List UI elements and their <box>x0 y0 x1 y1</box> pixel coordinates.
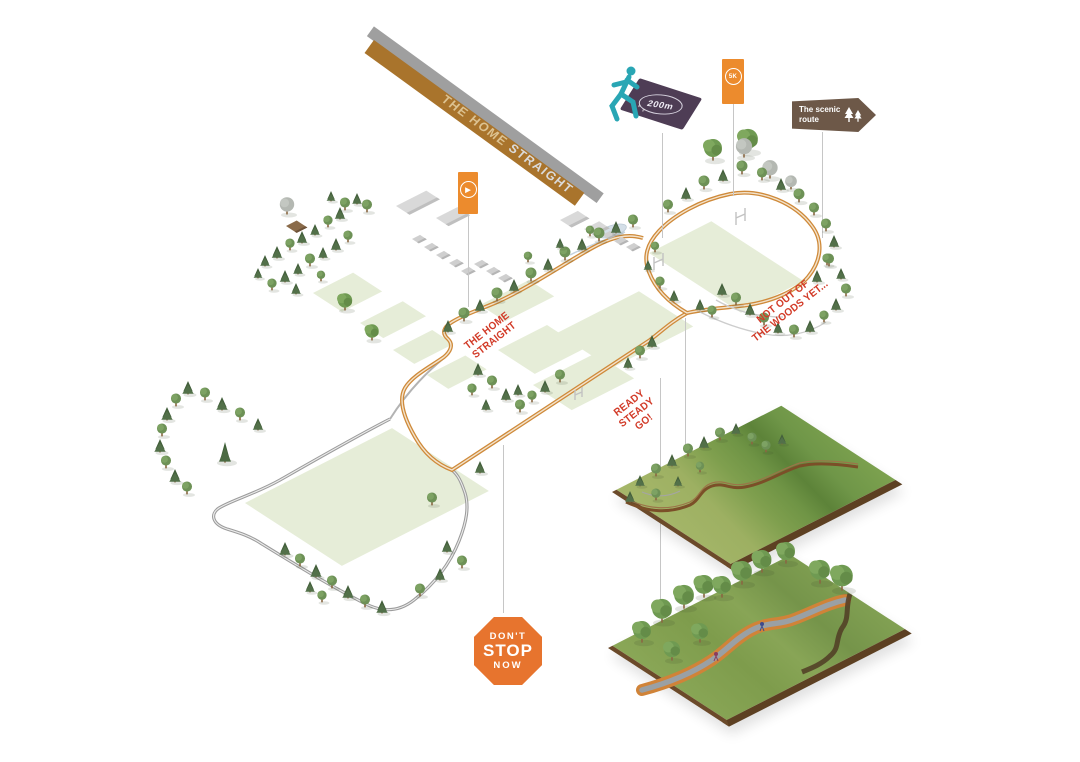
route-badge-banner: 5K <box>722 59 744 104</box>
tree-icon <box>340 198 353 213</box>
tree-icon <box>695 299 707 313</box>
tree-icon <box>699 436 712 451</box>
tree-icon <box>527 391 539 405</box>
stop-line3: NOW <box>493 660 522 671</box>
tree-icon <box>651 464 664 479</box>
tree-icon <box>272 246 285 261</box>
tree-icon <box>415 584 428 599</box>
tree-icon <box>501 388 514 403</box>
tree-icon <box>737 160 751 177</box>
route-badge-icon: 5K <box>725 68 742 85</box>
pine-trees-icon <box>843 105 865 125</box>
tree-icon <box>473 363 486 378</box>
park-running-route-masterplan: THE HOME STRAIGHT 200m ▶ 5K The scenic r… <box>0 0 1080 762</box>
tree-icon <box>317 591 329 605</box>
tree-icon <box>647 335 660 350</box>
tree-icon <box>216 397 230 413</box>
tree-icon <box>161 456 174 471</box>
tree-icon <box>635 475 647 489</box>
tree-icon <box>285 239 297 253</box>
tree-icon <box>669 290 681 304</box>
tree-icon <box>556 238 567 251</box>
tree-icon <box>635 346 648 361</box>
tree-icon <box>644 260 655 273</box>
tree-icon <box>667 454 680 469</box>
tree-icon <box>435 568 448 583</box>
tree-icon <box>200 388 213 403</box>
tree-icon <box>467 384 479 398</box>
tree-icon <box>305 254 318 269</box>
tree-icon <box>651 242 662 255</box>
tree-icon <box>291 283 303 297</box>
tree-icon <box>805 320 818 335</box>
tree-icon <box>169 469 183 485</box>
tree-icon <box>267 279 279 293</box>
play-icon: ▶ <box>460 181 477 198</box>
tree-icon <box>327 576 340 591</box>
tree-icon <box>731 293 744 308</box>
tree-icon <box>555 370 568 385</box>
tree-icon <box>161 407 175 423</box>
tree-icon <box>696 462 707 475</box>
tree-icon <box>778 434 789 447</box>
tree-icon <box>253 418 266 433</box>
tree-icon <box>182 482 195 497</box>
tree-icon <box>293 263 305 277</box>
tree-icon <box>513 384 525 398</box>
tree-icon <box>323 216 335 230</box>
tree-icon <box>836 268 848 282</box>
tree-icon <box>623 357 635 371</box>
tree-icon <box>182 381 196 397</box>
tree-icon <box>718 169 731 184</box>
tree-icon <box>789 325 802 340</box>
tree-icon <box>481 399 493 413</box>
tree-icon <box>509 279 522 294</box>
tree-icon <box>632 621 654 646</box>
tree-icon <box>625 491 637 505</box>
tree-icon <box>254 268 265 281</box>
tree-icon <box>761 441 773 455</box>
tree-icon <box>683 444 696 459</box>
tree-icon <box>707 306 719 320</box>
tree-icon <box>830 565 856 595</box>
tree-icon <box>543 258 556 273</box>
tree-icon <box>337 293 355 313</box>
tree-icon <box>331 238 344 253</box>
tree-icon <box>475 299 488 314</box>
tree-icon <box>831 298 844 313</box>
tree-icon <box>280 270 293 285</box>
distance-value: 200m <box>646 98 676 111</box>
tree-icon <box>594 227 608 244</box>
tree-icon <box>342 585 356 601</box>
tree-icon <box>526 267 540 284</box>
tree-icon <box>217 442 237 466</box>
tree-icon <box>171 394 184 409</box>
tree-icon <box>819 311 831 325</box>
scenic-route-label: The scenic route <box>799 105 843 126</box>
tree-icon <box>343 231 355 245</box>
scenic-route-sign: The scenic route <box>792 98 876 132</box>
tree-icon <box>427 493 440 508</box>
tree-icon <box>628 215 641 230</box>
tree-icon <box>327 191 338 204</box>
tree-icon <box>651 599 675 627</box>
tree-icon <box>157 424 170 439</box>
tree-icon <box>717 283 730 298</box>
tree-icon <box>809 560 833 588</box>
tree-icon <box>459 307 473 324</box>
tree-icon <box>318 247 330 261</box>
tree-icon <box>487 376 500 391</box>
tree-icon <box>821 219 834 234</box>
tree-icon <box>731 423 743 437</box>
media-marker-banner: ▶ <box>458 172 478 214</box>
tree-icon <box>712 576 734 601</box>
stop-sign-face: DON'T STOP NOW <box>474 617 542 685</box>
tree-icon <box>365 324 382 343</box>
tree-icon <box>376 600 390 616</box>
tree-icon <box>809 203 822 218</box>
tree-icon <box>681 187 694 202</box>
tree-icon <box>703 139 725 164</box>
tree-icon <box>305 581 317 595</box>
tree-icon <box>317 271 328 284</box>
tree-icon <box>297 231 310 246</box>
tree-icon <box>651 489 663 503</box>
tree-icon <box>776 542 798 567</box>
tree-icon <box>747 433 759 447</box>
tree-icon <box>674 476 685 489</box>
tree-icon <box>310 224 322 238</box>
tree-icon <box>829 235 842 250</box>
tree-icon <box>540 380 553 395</box>
tree-icon <box>663 200 676 215</box>
tree-icon <box>694 575 717 601</box>
tree-icon <box>279 542 293 558</box>
tree-icon <box>442 540 455 555</box>
tree-icon <box>492 287 506 304</box>
tree-icon <box>260 255 272 269</box>
tree-icon <box>663 641 683 664</box>
tree-icon <box>235 408 248 423</box>
tree-icon <box>515 400 528 415</box>
tree-icon <box>577 238 590 253</box>
tree-icon <box>295 554 308 569</box>
tree-icon <box>280 197 297 217</box>
tree-icon <box>362 200 375 215</box>
tree-icon <box>752 550 775 576</box>
tree-icon <box>457 556 470 571</box>
tree-icon <box>154 439 168 455</box>
stop-line2: STOP <box>483 642 533 660</box>
tree-icon <box>715 428 728 443</box>
tree-icon <box>655 277 667 291</box>
tree-icon <box>524 252 535 265</box>
tree-icon <box>443 320 456 335</box>
tree-icon <box>699 175 713 192</box>
tree-icon <box>794 188 808 205</box>
tree-icon <box>360 595 373 610</box>
tree-icon <box>841 284 854 299</box>
tree-icon <box>475 461 488 476</box>
tree-icon <box>691 623 711 646</box>
runner-icon <box>606 64 646 124</box>
tree-icon <box>310 564 324 580</box>
tree-icon <box>731 561 755 589</box>
tree-icon <box>611 221 624 236</box>
stop-sign: DON'T STOP NOW <box>470 613 546 689</box>
tree-icon <box>673 585 697 613</box>
